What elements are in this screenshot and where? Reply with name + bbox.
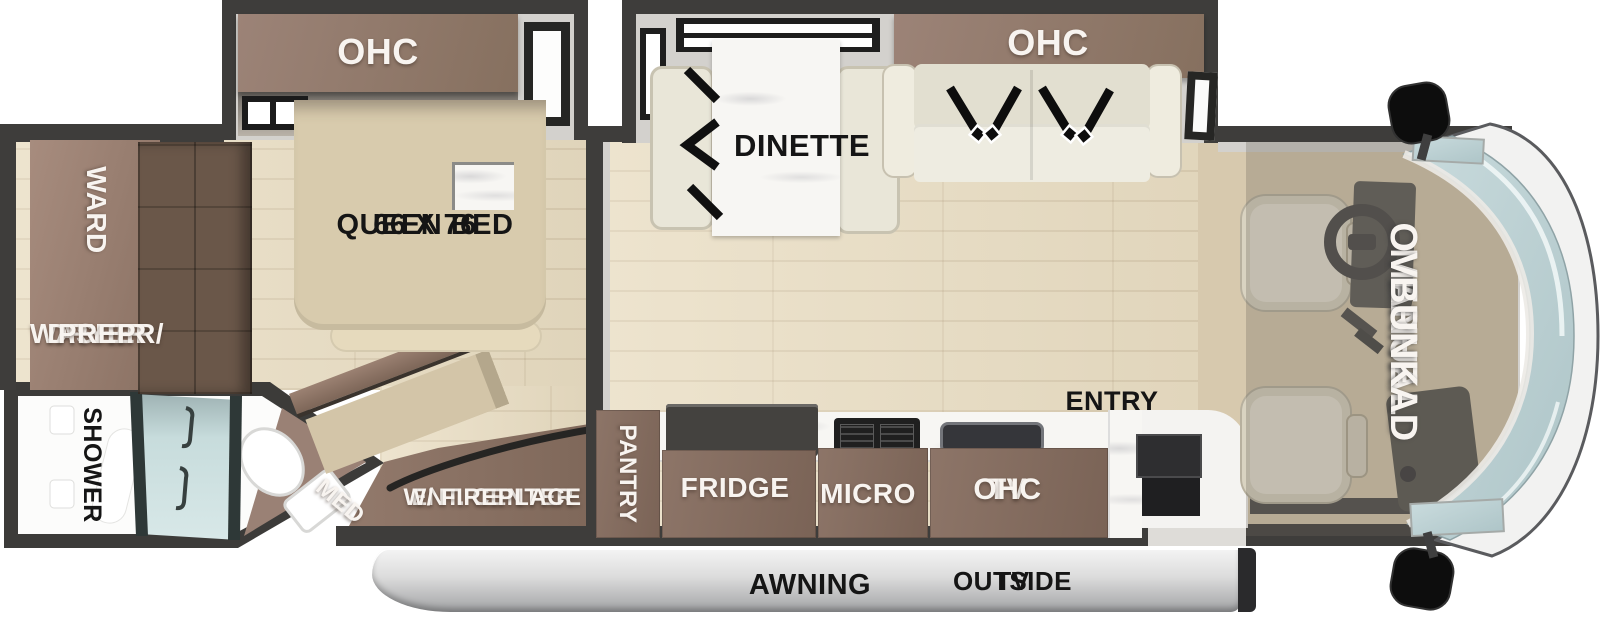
- washer-dryer-prep-label: WASHER/ DRYER PREP: [24, 286, 170, 382]
- shower-label: SHOWER: [74, 380, 110, 550]
- cab-side-window-bottom: [1410, 499, 1504, 536]
- ent-center-label: ENT. CENTER W/ FIREPLACE: [380, 468, 605, 528]
- fridge-label: FRIDGE: [660, 470, 810, 506]
- awning-label: AWNING: [700, 568, 920, 602]
- micro-label: MICRO: [793, 476, 943, 512]
- queen-bed-label: 66 X 76 QUEEN BED: [330, 192, 520, 258]
- side-mirror-bottom-icon: [1387, 545, 1456, 613]
- entry-label: ENTRY: [1032, 385, 1192, 417]
- pantry-label: PANTRY: [610, 399, 644, 549]
- outside-tv-label: OUTSIDE TV: [935, 552, 1090, 610]
- ohc-bedroom-label: OHC: [308, 33, 448, 71]
- ohc-living-label: OHC: [978, 24, 1118, 62]
- tv-ohc-label: TV OHC: [930, 450, 1085, 530]
- awning-end-cap: [1238, 548, 1256, 612]
- overhead-bunk-label: MANUAL OVERHEAD BUNK: [1327, 182, 1477, 482]
- dinette-label: DINETTE: [712, 128, 892, 164]
- side-mirror-top-icon: [1385, 79, 1452, 146]
- ward-label: WARD: [78, 130, 114, 290]
- rv-floorplan: OHC WARD WASHER/ DRYER PREP 66 X 76 QUEE…: [0, 0, 1600, 635]
